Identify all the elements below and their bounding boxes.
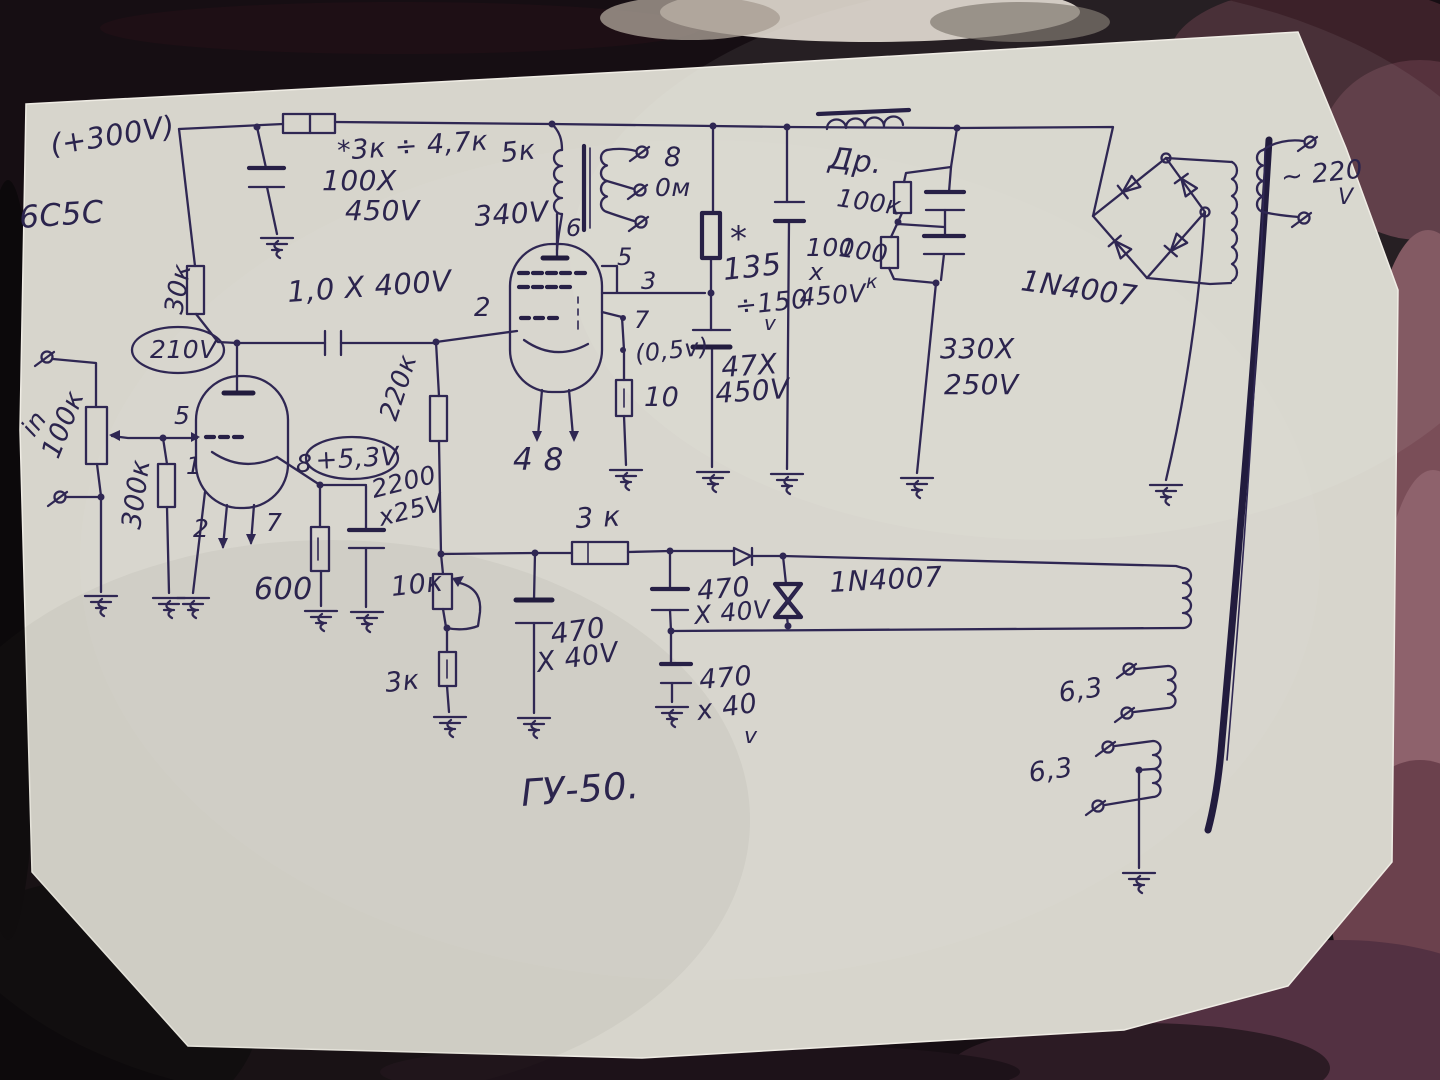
label-screen-resistor: 135 <box>721 247 783 288</box>
label-bias-r-series: 3 к <box>575 500 622 535</box>
photo-of-hand-drawn-schematic: (+300V) 6С5С *3к ÷ 4,7к 5к 100X 450V 340… <box>0 0 1440 1080</box>
label-screen-cap-v: 450V <box>714 372 792 410</box>
label-gu50-pin5: 5 <box>617 243 633 271</box>
label-grid-pin-2: 2 <box>474 293 491 323</box>
label-bias-c3-v2: v <box>744 724 758 749</box>
label-input-tube-type: 6С5С <box>18 194 105 236</box>
label-cathode-r-10: 10 <box>644 382 679 413</box>
label-cathode-r-600: 600 <box>254 572 313 607</box>
label-pin2: 2 <box>193 514 209 543</box>
label-pin7: 7 <box>266 508 282 537</box>
schematic-scene: (+300V) 6С5С *3к ÷ 4,7к 5к 100X 450V 340… <box>0 0 1440 1080</box>
label-schematic-title: ГУ-50. <box>520 764 641 815</box>
label-choke: Др. <box>825 141 884 182</box>
label-primary-impedance: 5к <box>499 135 537 169</box>
label-stack-cap: 330X <box>940 332 1015 365</box>
label-anode-voltage-210: 210V <box>150 335 218 364</box>
label-pin5: 5 <box>174 401 190 430</box>
label-mains-v: V <box>1338 185 1355 210</box>
label-screen-voltage-v: v <box>764 311 777 335</box>
label-gu50-pin6: 6 <box>566 214 582 242</box>
label-stack-cap-v: 250V <box>944 368 1020 401</box>
label-filament-2: 6,3 <box>1027 752 1075 789</box>
label-divider-r2-k: к <box>866 271 878 293</box>
label-pin1: 1 <box>186 452 202 480</box>
label-anode-voltage-340: 340V <box>473 195 551 233</box>
label-filament-1: 6,3 <box>1057 672 1105 709</box>
label-rail-filter-cap: 100X <box>322 164 397 197</box>
label-gu50-pin3: 3 <box>641 267 657 295</box>
label-tap-8: 8 <box>664 142 682 173</box>
label-psu-cap-450: 450V <box>798 278 868 312</box>
label-rail-filter-cap-v: 450V <box>345 194 421 227</box>
label-bias-pot: 10к <box>389 567 444 603</box>
label-gu50-pin7: 7 <box>634 306 650 334</box>
label-bias-r-lower: 3к <box>383 665 421 699</box>
label-tap-0ohm: 0м <box>655 173 691 202</box>
label-bias-diode-type: 1N4007 <box>829 560 944 599</box>
label-gu50-pins-4-8: 4 8 <box>513 442 564 478</box>
label-pin8: 8 <box>296 449 312 478</box>
